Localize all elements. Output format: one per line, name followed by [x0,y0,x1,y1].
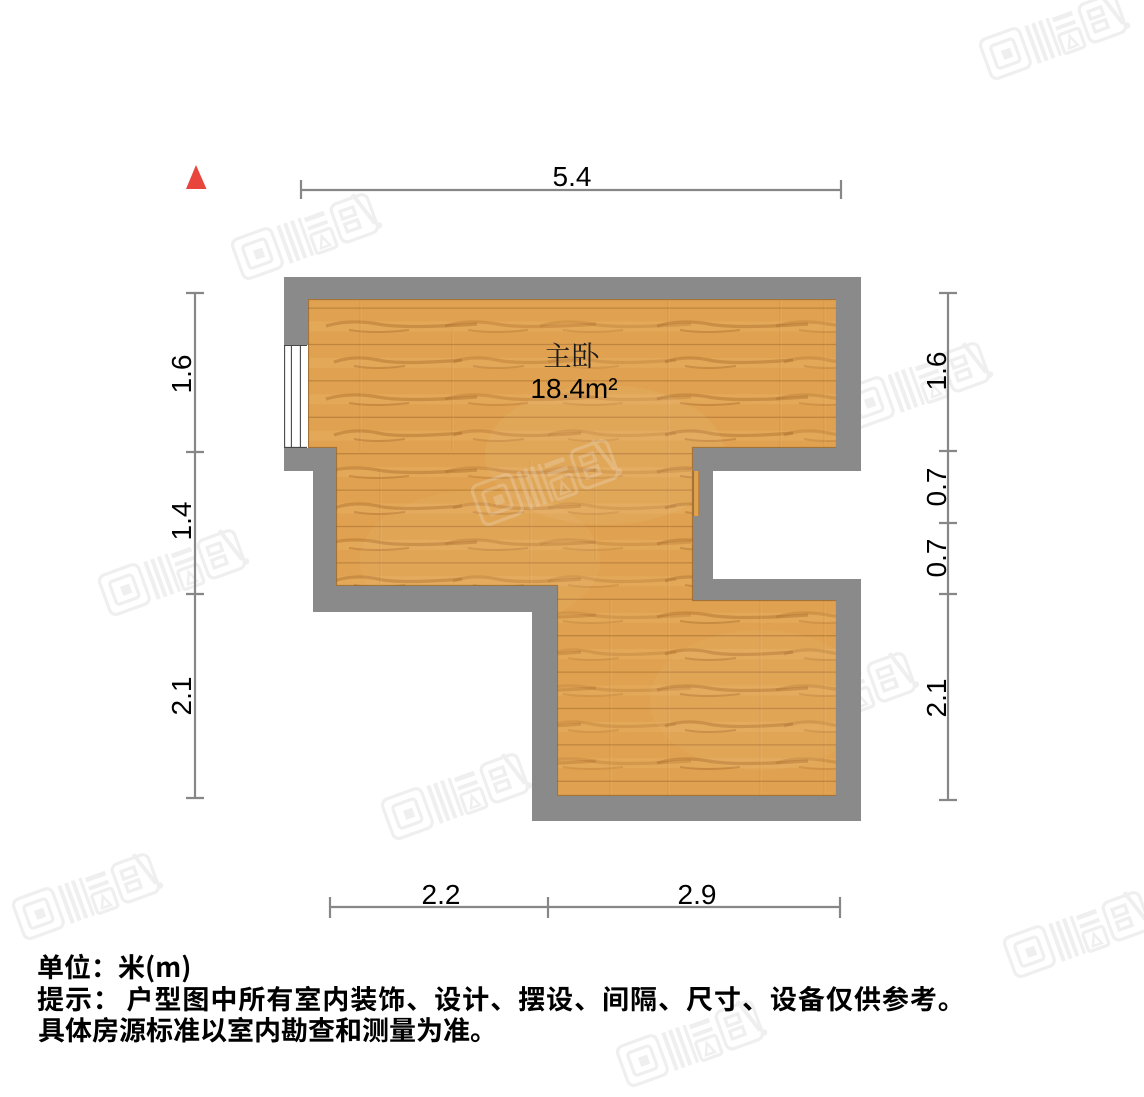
svg-text:0.7: 0.7 [921,468,952,507]
svg-text:1.4: 1.4 [166,502,197,541]
svg-text:1.6: 1.6 [166,355,197,394]
svg-text:1.6: 1.6 [921,352,952,391]
svg-text:2.9: 2.9 [678,879,717,910]
svg-text:5.4: 5.4 [553,161,592,192]
svg-text:18.4m²: 18.4m² [530,373,617,404]
svg-text:2.2: 2.2 [422,879,461,910]
svg-text:0.7: 0.7 [921,539,952,578]
svg-text:2.1: 2.1 [166,677,197,716]
svg-text:2.1: 2.1 [921,679,952,718]
